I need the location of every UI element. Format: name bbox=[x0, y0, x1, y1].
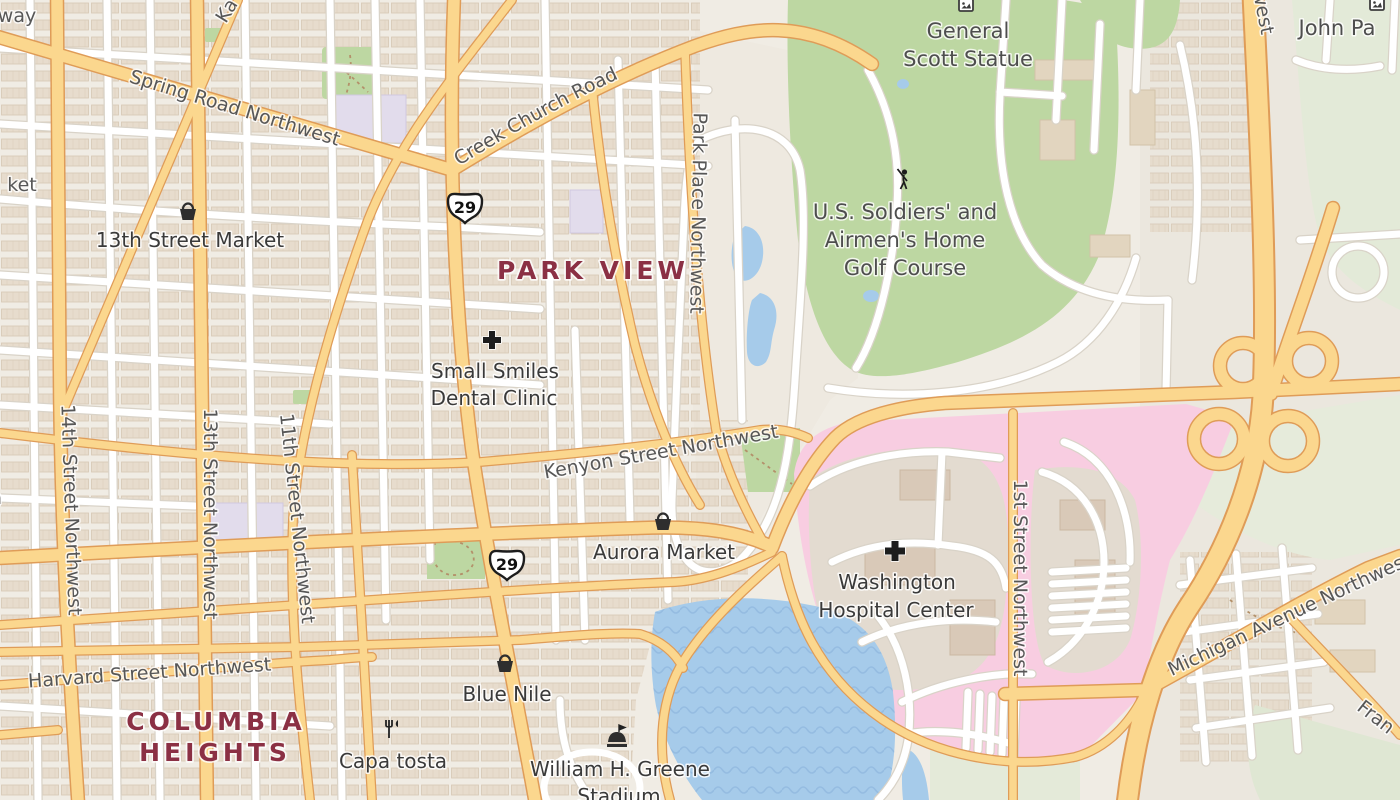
map-viewport[interactable]: 29 29 Spring Road Northwest Rock Creek C… bbox=[0, 0, 1400, 800]
neighborhood-label-columbia-2: HEIGHTS bbox=[139, 738, 291, 767]
poi-label-stadium-2: Stadium bbox=[577, 784, 660, 800]
artwork-icon bbox=[1370, 0, 1384, 10]
street-label-1st: 1st Street Northwest bbox=[1009, 480, 1031, 677]
poi-label-scott-2: Scott Statue bbox=[903, 47, 1033, 71]
route-number: 29 bbox=[496, 555, 518, 574]
poi-label-dental-2: Dental Clinic bbox=[431, 386, 558, 410]
poi-label-golf-2: Airmen's Home bbox=[825, 228, 986, 252]
partial-label-a: a bbox=[0, 485, 2, 509]
poi-label-aurora-market: Aurora Market bbox=[593, 540, 735, 564]
poi-label-capa-tosta: Capa tosta bbox=[339, 749, 447, 773]
neighborhood-label-columbia-1: COLUMBIA bbox=[126, 707, 306, 736]
lavender-building-3 bbox=[570, 190, 603, 233]
poi-label-golf-3: Golf Course bbox=[844, 256, 966, 280]
poi-label-hospital-2: Hospital Center bbox=[818, 598, 974, 622]
poi-label-hospital-1: Washington bbox=[838, 570, 956, 594]
street-label-ket-partial: ket bbox=[7, 174, 36, 196]
poi-label-golf-1: U.S. Soldiers' and bbox=[813, 200, 997, 224]
artwork-icon bbox=[959, 0, 973, 11]
street-label-way-partial: way bbox=[0, 5, 36, 27]
route-number: 29 bbox=[454, 198, 476, 217]
poi-label-john-partial: John Pa bbox=[1297, 16, 1376, 40]
poi-label-13th-street-market: 13th Street Market bbox=[96, 228, 284, 252]
poi-label-scott-1: General bbox=[927, 19, 1010, 43]
poi-label-dental-1: Small Smiles bbox=[431, 359, 559, 383]
street-label-13th: 13th Street Northwest bbox=[199, 408, 221, 619]
map-canvas[interactable]: 29 29 Spring Road Northwest Rock Creek C… bbox=[0, 0, 1400, 800]
neighborhood-label-park-view: PARK VIEW bbox=[497, 256, 689, 285]
street-label-park-place: Park Place Northwest bbox=[685, 112, 711, 314]
poi-label-stadium-1: William H. Greene bbox=[530, 757, 710, 781]
poi-label-blue-nile: Blue Nile bbox=[463, 682, 552, 706]
